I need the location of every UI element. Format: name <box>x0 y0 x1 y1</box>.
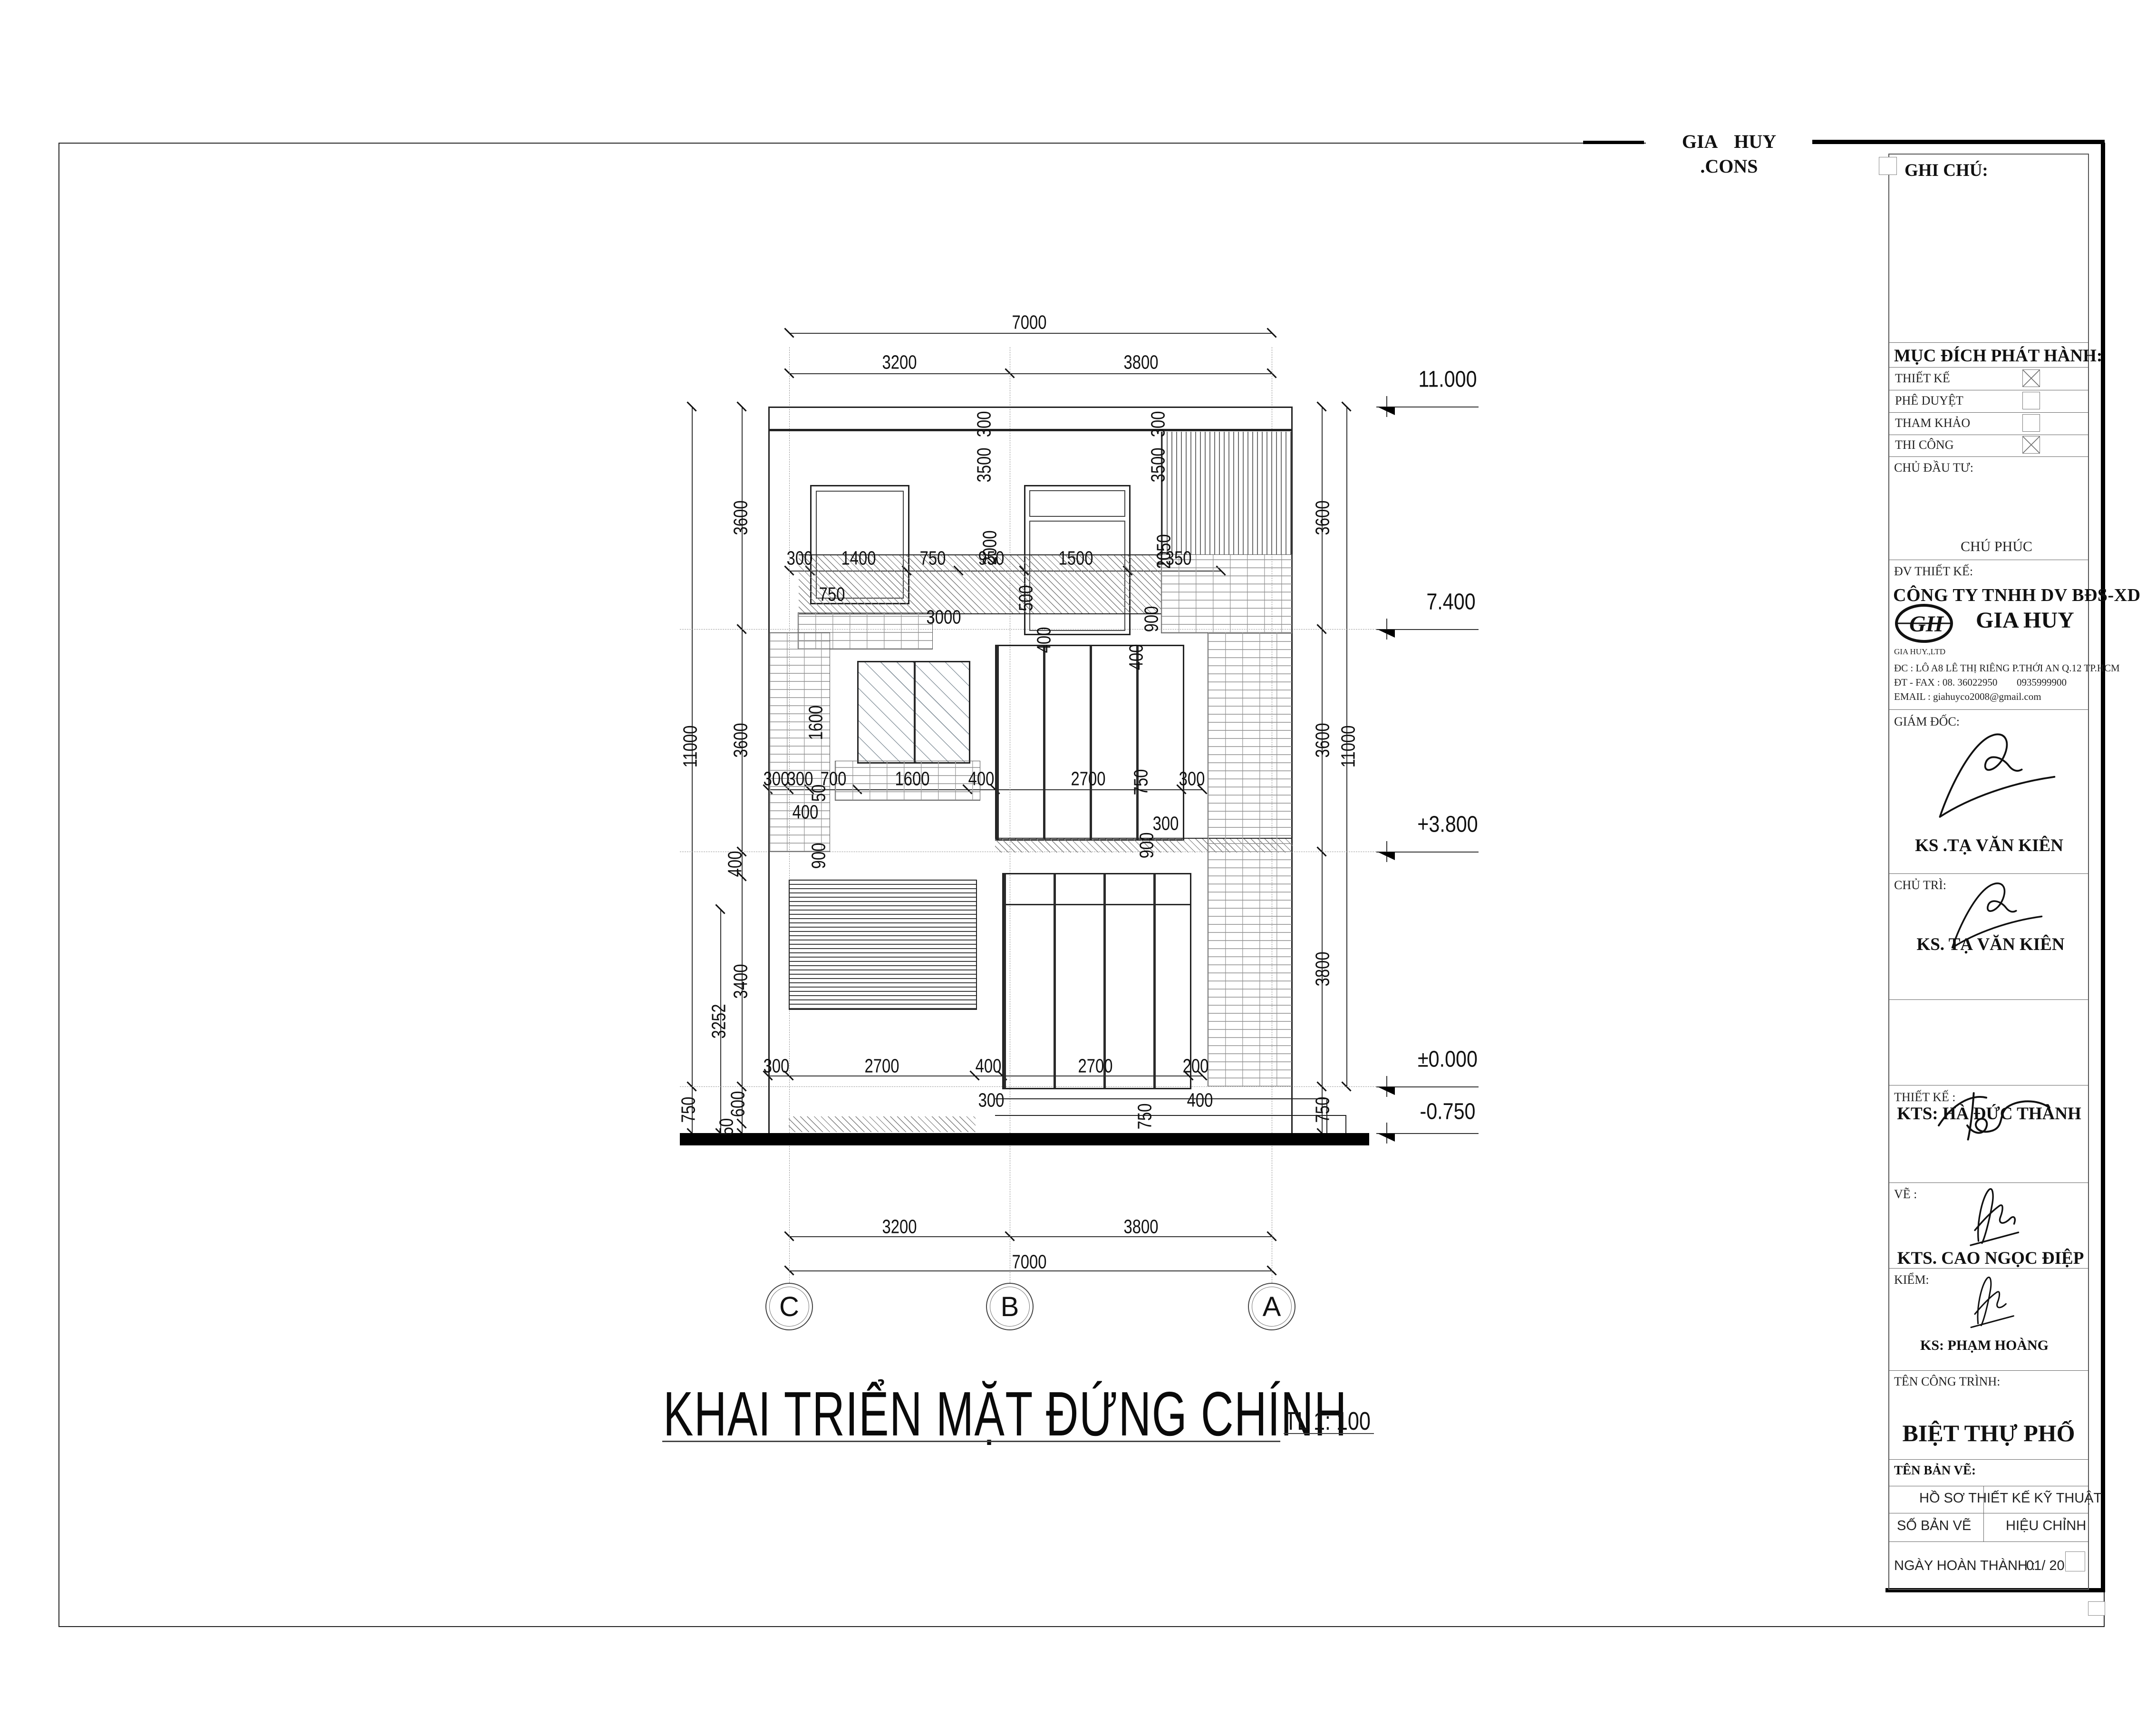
dim-label: 300 <box>764 768 790 790</box>
tb-rule <box>1889 412 2088 413</box>
date-square <box>2065 1551 2085 1571</box>
scale-underline <box>1284 1433 1374 1434</box>
grid-letter-c: C <box>779 1291 799 1323</box>
dim-label: 400 <box>1125 644 1148 670</box>
dim-label: 50 <box>715 1118 738 1135</box>
tb-rule <box>1889 1085 2088 1085</box>
drawn-label: VẼ : <box>1894 1187 1917 1202</box>
completion-date-label: NGÀY HOÀN THÀNH : <box>1894 1558 2035 1574</box>
company-fax: ĐT - FAX : 08. 36022950 <box>1894 677 1997 688</box>
dim-label: 300 <box>1147 411 1170 437</box>
dim-label: 600 <box>727 1091 749 1117</box>
dim-label: 300 <box>787 547 813 570</box>
tb-rule <box>1889 709 2088 710</box>
sheet-name-label: TÊN BẢN VẼ: <box>1894 1463 1976 1478</box>
dim-label: 400 <box>976 1055 1002 1077</box>
dim-label: 300 <box>764 1055 790 1077</box>
tb-rule <box>1889 1486 2088 1486</box>
tb-rule <box>1889 873 2088 874</box>
tb-rule <box>1889 367 2088 368</box>
tb-rule <box>1889 1182 2088 1183</box>
dim-label: 3600 <box>730 723 752 758</box>
dim-label: 750 <box>1312 1097 1334 1123</box>
dim-label: 3500 <box>973 448 996 483</box>
designer-label: ĐV THIẾT KẾ: <box>1894 564 1973 579</box>
dim-label: 750 <box>1134 1104 1156 1130</box>
grid-bubble-a: A <box>1248 1283 1296 1330</box>
dim-label: 1600 <box>805 706 827 740</box>
purpose-row-label: THAM KHẢO <box>1895 416 1970 430</box>
dim-label: 300 <box>973 411 996 437</box>
dim-label: 750 <box>819 583 845 606</box>
company-address: ĐC : LÔ A8 LÊ THỊ RIÊNG P.THỚI AN Q.12 T… <box>1894 662 2120 674</box>
dim-label: 400 <box>968 768 995 790</box>
drawn-signature <box>1956 1184 2037 1248</box>
dimension-labels-layer: 7000320038003001400750950150013507503000… <box>0 0 2156 1725</box>
svg-text:GH: GH <box>1909 611 1944 637</box>
tb-rule <box>1889 560 2088 560</box>
purpose-row-label: THIẾT KẾ <box>1895 371 1950 386</box>
dim-label: 300 <box>1153 813 1179 835</box>
dim-label: 1500 <box>1059 547 1093 570</box>
grid-letter-a: A <box>1263 1291 1281 1323</box>
dim-label: 2000 <box>979 531 1001 565</box>
dim-label: 3800 <box>1124 351 1159 374</box>
project-name: BIỆT THỰ PHỐ <box>1902 1419 2075 1447</box>
dim-label: 3200 <box>882 351 917 374</box>
level-label: -0.750 <box>1420 1099 1475 1125</box>
dim-label: 400 <box>724 851 746 877</box>
dim-label: 3252 <box>708 1004 730 1039</box>
dim-label: 750 <box>920 547 946 570</box>
dim-label: 900 <box>1136 833 1158 859</box>
dim-label: 7000 <box>1012 311 1047 334</box>
project-label: TÊN CÔNG TRÌNH: <box>1894 1375 2000 1389</box>
checkbox-phe-duyet <box>2022 392 2040 409</box>
checkbox-thiet-ke <box>2022 369 2040 387</box>
dossier-label: HỒ SƠ THIẾT KẾ KỸ THUẬT <box>1919 1491 2102 1506</box>
tb-rule <box>1889 999 2088 1000</box>
check-signature <box>1956 1273 2032 1330</box>
tb-rule <box>1889 1459 2088 1460</box>
dim-label: 2700 <box>1071 768 1106 790</box>
tb-rule <box>1889 435 2088 435</box>
sheet: GIA HUY .CONS 70003200380030014007509501… <box>0 0 2156 1725</box>
dim-label: 3000 <box>927 606 961 629</box>
checkbox-thi-cong <box>2022 436 2040 454</box>
ghi-chu-square <box>1879 157 1897 175</box>
dim-label: 400 <box>793 801 819 824</box>
grid-bubble-c: C <box>765 1283 813 1330</box>
dim-label: 2700 <box>865 1055 899 1077</box>
tb-rule <box>1889 342 2088 343</box>
level-label: ±0.000 <box>1418 1047 1478 1073</box>
dim-label: 11000 <box>679 726 702 768</box>
company-logo: GH <box>1893 601 1955 647</box>
dim-label: 300 <box>1179 768 1205 790</box>
director-label: GIÁM ĐỐC: <box>1894 715 1960 729</box>
revision-label: HIỆU CHỈNH <box>2006 1518 2086 1534</box>
sheet-number-label: SỐ BẢN VẼ <box>1897 1518 1971 1534</box>
tb-rule <box>1889 390 2088 390</box>
dim-label: 50 <box>808 785 830 802</box>
purpose-row-label: PHÊ DUYỆT <box>1895 394 1963 408</box>
level-label: +3.800 <box>1417 812 1478 838</box>
dim-label: 3600 <box>730 501 752 535</box>
dim-label: 1600 <box>895 768 930 790</box>
grid-bubble-b: B <box>986 1283 1034 1330</box>
dim-label: 200 <box>1183 1055 1209 1077</box>
tb-rule <box>1889 456 2088 457</box>
design-name: KTS: HÀ ĐỨC THÀNH <box>1897 1104 2081 1124</box>
dim-label: 3400 <box>730 964 752 999</box>
dim-label: 400 <box>1033 627 1055 653</box>
dim-label: 1400 <box>841 547 876 570</box>
dim-label: 300 <box>978 1089 1005 1112</box>
company-phone: 0935999900 <box>2017 677 2067 688</box>
dim-label: 750 <box>1130 769 1152 795</box>
director-name: KS .TẠ VĂN KIÊN <box>1915 835 2063 856</box>
drawn-name: KTS. CAO NGỌC ĐIỆP <box>1897 1248 2084 1269</box>
dim-label: 7000 <box>1012 1251 1047 1273</box>
dim-label: 900 <box>808 843 830 869</box>
logo-caption: GIA HUY.,LTD <box>1894 647 1945 657</box>
title-block: GHI CHÚ: MỤC ĐÍCH PHÁT HÀNH: THIẾT KẾ PH… <box>1888 154 2089 1590</box>
lead-name: KS. TẠ VĂN KIÊN <box>1916 934 2064 955</box>
dim-label: 2700 <box>1078 1055 1113 1077</box>
drawing-title: KHAI TRIỂN MẶT ĐỨNG CHÍNH <box>663 1378 1347 1450</box>
grid-letter-b: B <box>1001 1291 1019 1323</box>
level-label: 7.400 <box>1426 589 1475 615</box>
dim-label: 400 <box>1187 1089 1213 1112</box>
dim-label: 2050 <box>1153 534 1175 569</box>
tb-rule <box>1889 1541 2088 1542</box>
dim-label: 3200 <box>882 1216 917 1238</box>
title-underline <box>662 1441 1280 1442</box>
check-name: KS: PHẠM HOÀNG <box>1920 1337 2049 1354</box>
check-label: KIỂM: <box>1894 1273 1929 1287</box>
director-signature <box>1934 727 2058 823</box>
client-label: CHỦ ĐẦU TƯ: <box>1894 461 1973 475</box>
dim-label: 3800 <box>1312 952 1334 987</box>
dim-label: 3500 <box>1147 448 1170 483</box>
dim-label: 750 <box>677 1097 700 1123</box>
notes-header: GHI CHÚ: <box>1905 160 1988 181</box>
dim-label: 900 <box>1141 606 1163 632</box>
client-name: CHÚ PHÚC <box>1961 539 2032 555</box>
dim-label: 3600 <box>1312 723 1334 758</box>
tb-rule <box>1889 1513 2088 1513</box>
purpose-row-label: THI CÔNG <box>1895 438 1954 452</box>
level-label: 11.000 <box>1418 367 1477 393</box>
company-name-line2: GIA HUY <box>1976 607 2074 633</box>
tb-rule <box>1889 1370 2088 1371</box>
purpose-header: MỤC ĐÍCH PHÁT HÀNH: <box>1894 346 2102 366</box>
company-email: EMAIL : giahuyco2008@gmail.com <box>1894 691 2041 703</box>
dim-label: 500 <box>1015 585 1037 611</box>
dim-label: 3800 <box>1124 1216 1159 1238</box>
checkbox-tham-khao <box>2022 414 2040 432</box>
drawing-scale: TL 1: 100 <box>1285 1406 1371 1436</box>
dim-label: 3600 <box>1312 501 1334 535</box>
dim-label: 11000 <box>1337 726 1360 768</box>
